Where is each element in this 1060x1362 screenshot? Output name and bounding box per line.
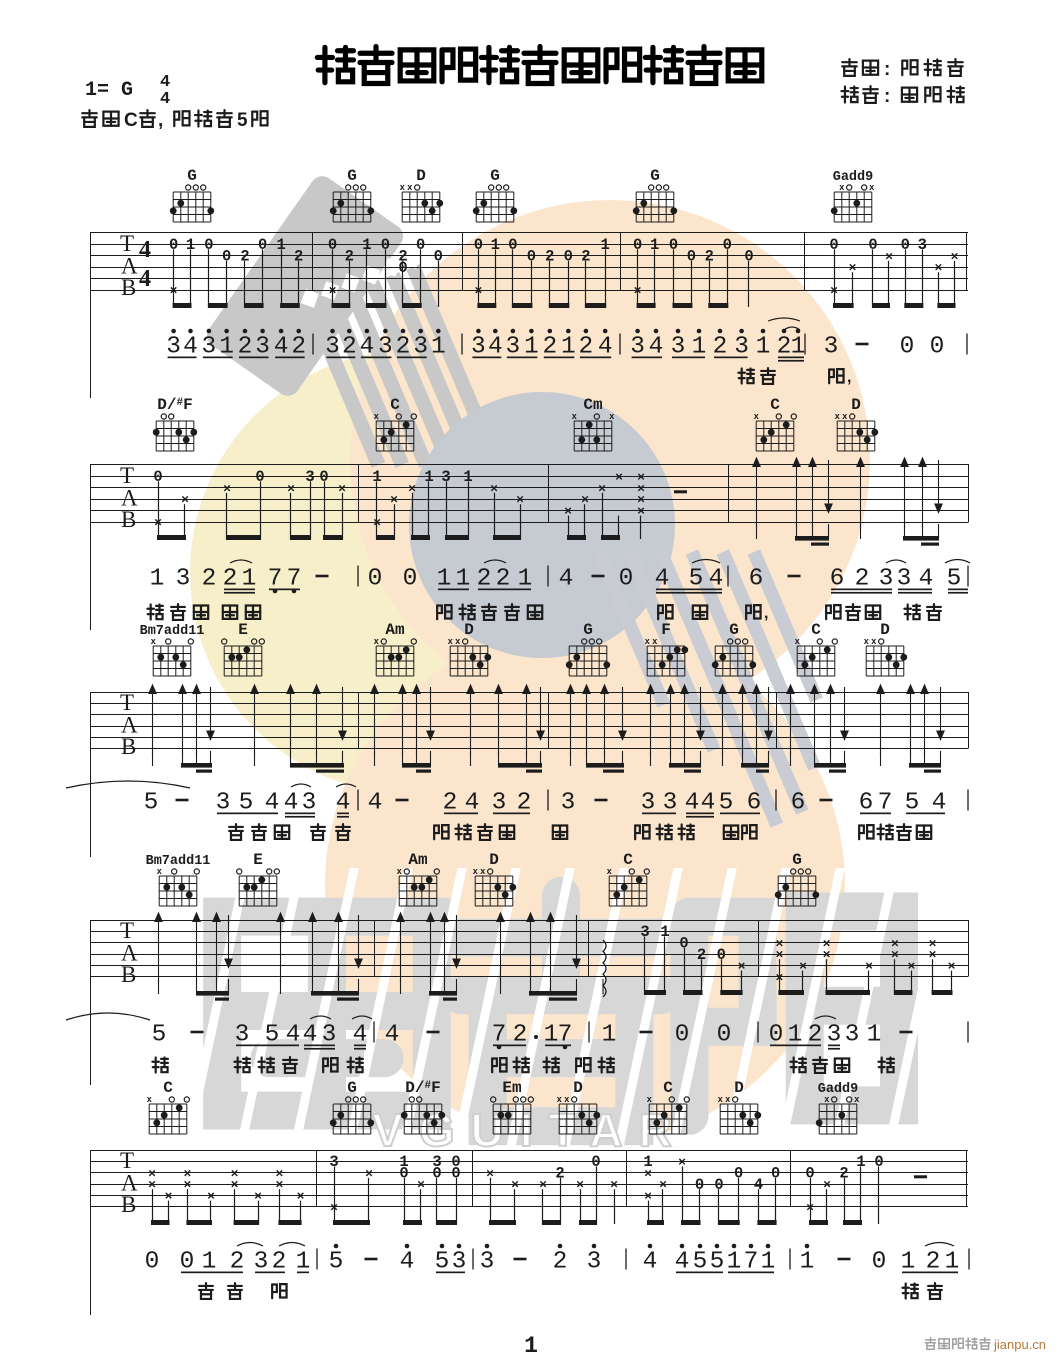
svg-text:0: 0 [872, 1248, 887, 1275]
svg-text:1: 1 [945, 1248, 960, 1275]
svg-text:G: G [583, 621, 593, 639]
svg-text:3: 3 [302, 789, 317, 816]
svg-text:2: 2 [808, 1021, 823, 1048]
svg-text:,: , [764, 605, 768, 622]
svg-text:E: E [253, 851, 263, 869]
svg-text:5: 5 [947, 565, 962, 592]
svg-text:5: 5 [144, 789, 159, 816]
svg-text:x: x [824, 1094, 829, 1104]
svg-text:4: 4 [385, 1021, 400, 1048]
svg-text:x: x [652, 636, 657, 646]
svg-text:4: 4 [598, 333, 613, 360]
svg-text:B: B [121, 962, 136, 987]
svg-text:x: x [374, 636, 379, 646]
svg-text:4: 4 [286, 1021, 301, 1048]
svg-text:x: x [400, 182, 405, 192]
svg-text:6: 6 [830, 565, 845, 592]
svg-text:2: 2 [496, 565, 511, 592]
svg-text:6: 6 [747, 789, 762, 816]
svg-text:0: 0 [717, 1021, 732, 1048]
svg-text:1: 1 [561, 333, 576, 360]
svg-text:2: 2 [926, 1248, 941, 1275]
svg-text:4: 4 [919, 565, 934, 592]
svg-text:G: G [792, 851, 802, 869]
svg-text:×: × [885, 248, 893, 263]
svg-text:2: 2 [230, 1248, 245, 1275]
svg-text:3: 3 [879, 565, 894, 592]
svg-text:x: x [754, 411, 759, 421]
svg-text:x: x [854, 1094, 859, 1104]
svg-text:Bm7add11: Bm7add11 [146, 854, 211, 869]
svg-text:5: 5 [152, 1021, 167, 1048]
svg-text:×: × [615, 469, 623, 484]
svg-text:0: 0 [900, 333, 915, 360]
svg-text:C: C [770, 396, 780, 414]
svg-text:x: x [607, 866, 612, 876]
svg-text:4: 4 [183, 333, 198, 360]
svg-text:3: 3 [827, 1021, 842, 1048]
svg-text:3: 3 [166, 333, 181, 360]
svg-text:×: × [799, 958, 807, 973]
svg-text:4: 4 [685, 789, 700, 816]
svg-text:5: 5 [329, 1248, 344, 1275]
svg-text:x: x [564, 1094, 569, 1104]
svg-text:1: 1 [202, 1248, 217, 1275]
svg-text:x: x [448, 636, 453, 646]
svg-text:B: B [121, 734, 136, 759]
svg-text:3: 3 [641, 789, 656, 816]
svg-text:x: x [480, 866, 485, 876]
svg-text:x: x [645, 636, 650, 646]
svg-text:7: 7 [878, 789, 893, 816]
svg-text:x: x [864, 636, 869, 646]
svg-text:5: 5 [905, 789, 920, 816]
svg-text:1: 1 [791, 333, 806, 360]
svg-text:1: 1 [296, 1248, 311, 1275]
svg-text:2: 2 [855, 565, 870, 592]
svg-text:2: 2 [272, 1248, 287, 1275]
svg-text:x: x [407, 182, 412, 192]
svg-text:D: D [416, 167, 426, 185]
svg-text:G: G [187, 167, 197, 185]
svg-text:3: 3 [671, 333, 686, 360]
svg-text:2: 2 [513, 1021, 528, 1048]
svg-text:4: 4 [284, 789, 299, 816]
svg-text:×: × [207, 1188, 215, 1203]
svg-text:3: 3 [255, 333, 270, 360]
svg-text:T: T [120, 690, 134, 715]
svg-text:3: 3 [663, 789, 678, 816]
svg-text:x: x [842, 411, 847, 421]
svg-text:1: 1 [150, 565, 165, 592]
svg-text:D: D [489, 851, 499, 869]
svg-text:2: 2 [291, 333, 306, 360]
svg-text:4: 4 [465, 789, 480, 816]
svg-text:x: x [647, 1094, 652, 1104]
svg-text:2: 2 [542, 333, 557, 360]
svg-text:5: 5 [689, 565, 704, 592]
svg-text:1: 1 [867, 1021, 882, 1048]
svg-text:4: 4 [303, 1021, 318, 1048]
svg-text:3: 3 [452, 1248, 467, 1275]
svg-text:4: 4 [643, 1248, 658, 1275]
svg-text:x: x [725, 1094, 730, 1104]
svg-text:4: 4 [265, 789, 280, 816]
svg-text:×: × [581, 492, 589, 507]
svg-text:jianpu.cn: jianpu.cn [993, 1337, 1046, 1352]
svg-text:1: 1 [800, 1248, 815, 1275]
svg-text:4: 4 [336, 789, 351, 816]
svg-text:Am: Am [408, 851, 428, 869]
svg-text:5: 5 [239, 789, 254, 816]
svg-text:1: 1 [544, 1021, 559, 1048]
svg-text:Bm7add11: Bm7add11 [140, 624, 205, 639]
svg-text:G: G [490, 167, 500, 185]
svg-text:1: 1 [901, 1248, 916, 1275]
svg-text:3: 3 [202, 333, 217, 360]
svg-text:1: 1 [602, 1021, 617, 1048]
svg-text:0: 0 [930, 333, 945, 360]
svg-text:×: × [865, 958, 873, 973]
svg-text:F: F [661, 621, 671, 639]
svg-text:x: x [473, 866, 478, 876]
svg-text:x: x [151, 636, 156, 646]
svg-text:G: G [729, 621, 739, 639]
svg-text:x: x [718, 1094, 723, 1104]
svg-text:D: D [734, 1079, 744, 1097]
svg-text:B: B [121, 1192, 136, 1217]
svg-text:3: 3 [630, 333, 645, 360]
svg-text:T: T [120, 231, 134, 256]
svg-text:×: × [644, 1165, 652, 1180]
svg-text:3: 3 [471, 333, 486, 360]
svg-text:×: × [287, 480, 295, 495]
svg-text:3: 3 [492, 789, 507, 816]
svg-text:4: 4 [488, 333, 503, 360]
svg-text:5: 5 [435, 1248, 450, 1275]
svg-text:0: 0 [368, 565, 383, 592]
svg-text:1: 1 [756, 333, 771, 360]
svg-text:4: 4 [353, 1021, 368, 1048]
svg-text:E: E [238, 621, 248, 639]
svg-text:×: × [223, 480, 231, 495]
svg-text:×: × [417, 1177, 425, 1192]
svg-text:6: 6 [749, 565, 764, 592]
svg-text:x: x [572, 411, 577, 421]
svg-text:2: 2 [238, 333, 253, 360]
svg-text:D/#F: D/#F [405, 1079, 440, 1097]
svg-text::: : [884, 86, 890, 107]
svg-text:1: 1 [727, 1248, 742, 1275]
svg-text:T: T [120, 918, 134, 943]
svg-text:7: 7 [287, 565, 302, 592]
svg-text:0: 0 [769, 1021, 784, 1048]
svg-text:×: × [659, 1177, 667, 1192]
svg-text:3: 3 [897, 565, 912, 592]
svg-text:7: 7 [558, 1021, 573, 1048]
svg-text:4: 4 [274, 333, 289, 360]
svg-text:3: 3 [824, 333, 839, 360]
svg-text:1: 1 [788, 1021, 803, 1048]
svg-text:0: 0 [403, 565, 418, 592]
svg-text:4: 4 [139, 266, 151, 292]
svg-text:3: 3 [587, 1248, 602, 1275]
svg-text:0: 0 [180, 1248, 195, 1275]
svg-text:x: x [609, 411, 614, 421]
svg-text:1: 1 [219, 333, 234, 360]
svg-text:T: T [120, 463, 134, 488]
svg-text:3: 3 [176, 565, 191, 592]
svg-text:3: 3 [506, 333, 521, 360]
svg-text:C: C [623, 851, 633, 869]
svg-text:3: 3 [216, 789, 231, 816]
svg-text:Em: Em [502, 1079, 522, 1097]
svg-text:B: B [121, 507, 136, 532]
svg-text:,: , [158, 110, 163, 131]
svg-text:3: 3 [413, 333, 428, 360]
svg-text:2: 2 [477, 565, 492, 592]
svg-text:×: × [511, 1177, 519, 1192]
svg-text:×: × [637, 503, 645, 518]
svg-text:2: 2 [517, 789, 532, 816]
svg-text:2: 2 [202, 565, 217, 592]
svg-text:C: C [390, 396, 400, 414]
svg-text:D: D [573, 1079, 583, 1097]
svg-text:2: 2 [396, 333, 411, 360]
svg-text:1= G: 1= G [85, 79, 133, 102]
svg-text:7: 7 [268, 565, 283, 592]
svg-text:5: 5 [710, 1248, 725, 1275]
svg-text:4: 4 [932, 789, 947, 816]
svg-text:x: x [839, 182, 844, 192]
svg-text:3: 3 [734, 333, 749, 360]
svg-text:×: × [823, 1177, 831, 1192]
svg-text:5: 5 [719, 789, 734, 816]
svg-text:7: 7 [492, 1021, 507, 1048]
svg-text:2: 2 [342, 333, 357, 360]
svg-text:x: x [557, 1094, 562, 1104]
svg-text:4: 4 [368, 789, 383, 816]
svg-text:×: × [365, 1165, 373, 1180]
svg-text:4: 4 [360, 333, 375, 360]
svg-text:4: 4 [139, 237, 151, 263]
svg-text:x: x [869, 182, 874, 192]
svg-text:7: 7 [744, 1248, 759, 1275]
svg-text:3: 3 [378, 333, 393, 360]
svg-text:×: × [373, 515, 381, 530]
svg-text:T: T [120, 1148, 134, 1173]
svg-text:4: 4 [160, 90, 170, 109]
svg-text:D: D [851, 396, 861, 414]
svg-text:0: 0 [145, 1248, 160, 1275]
svg-text:2: 2 [777, 333, 792, 360]
svg-text::: : [884, 59, 890, 80]
svg-text:4: 4 [709, 565, 724, 592]
svg-text:1: 1 [524, 1333, 538, 1359]
svg-text:D: D [880, 621, 890, 639]
svg-text:C: C [163, 1079, 173, 1097]
svg-text:D: D [464, 621, 474, 639]
svg-text:x: x [455, 636, 460, 646]
svg-text:3: 3 [325, 333, 340, 360]
svg-text:x: x [795, 636, 800, 646]
svg-text:C: C [811, 621, 821, 639]
svg-text:C: C [663, 1079, 673, 1097]
svg-text:0: 0 [675, 1021, 690, 1048]
svg-text:4: 4 [675, 1248, 690, 1275]
svg-text:3: 3 [845, 1021, 860, 1048]
svg-text:5: 5 [693, 1248, 708, 1275]
svg-text:×: × [181, 492, 189, 507]
svg-text:×: × [891, 947, 899, 962]
svg-text:1: 1 [456, 565, 471, 592]
svg-text:5: 5 [265, 1021, 280, 1048]
svg-text:2: 2 [579, 333, 594, 360]
svg-text:x: x [871, 636, 876, 646]
svg-text:x: x [397, 866, 402, 876]
svg-text:1: 1 [761, 1248, 776, 1275]
svg-text:x: x [157, 866, 162, 876]
svg-text:4: 4 [649, 333, 664, 360]
svg-text:x: x [374, 411, 379, 421]
svg-text:3: 3 [235, 1021, 250, 1048]
svg-text:x: x [835, 411, 840, 421]
svg-text:Cm: Cm [583, 396, 603, 414]
svg-text:Am: Am [385, 621, 405, 639]
svg-text:1: 1 [518, 565, 533, 592]
svg-text:1: 1 [692, 333, 707, 360]
svg-text:0: 0 [619, 565, 634, 592]
svg-text:4: 4 [655, 565, 670, 592]
svg-text:1: 1 [524, 333, 539, 360]
svg-text:1: 1 [242, 565, 257, 592]
svg-text:2: 2 [443, 789, 458, 816]
svg-text:x: x [147, 1094, 152, 1104]
svg-text:2: 2 [713, 333, 728, 360]
svg-text:G: G [650, 167, 660, 185]
svg-text:6: 6 [791, 789, 806, 816]
svg-text:D/#F: D/#F [157, 396, 192, 414]
svg-text:G: G [347, 1079, 357, 1097]
svg-text:G: G [347, 167, 357, 185]
svg-text:4: 4 [400, 1248, 415, 1275]
svg-text:3: 3 [254, 1248, 269, 1275]
svg-text:3: 3 [322, 1021, 337, 1048]
svg-text:1: 1 [437, 565, 452, 592]
svg-text:4: 4 [701, 789, 716, 816]
svg-text:,: , [847, 369, 851, 386]
svg-text:1: 1 [431, 333, 446, 360]
svg-text:4: 4 [559, 565, 574, 592]
svg-text:C: C [124, 110, 138, 131]
svg-text:×: × [539, 1177, 547, 1192]
svg-text:3: 3 [480, 1248, 495, 1275]
svg-text:B: B [121, 275, 136, 300]
svg-text:2: 2 [553, 1248, 568, 1275]
svg-text:2: 2 [223, 565, 238, 592]
svg-text:3: 3 [561, 789, 576, 816]
svg-text:6: 6 [859, 789, 874, 816]
svg-text:5: 5 [237, 110, 248, 131]
